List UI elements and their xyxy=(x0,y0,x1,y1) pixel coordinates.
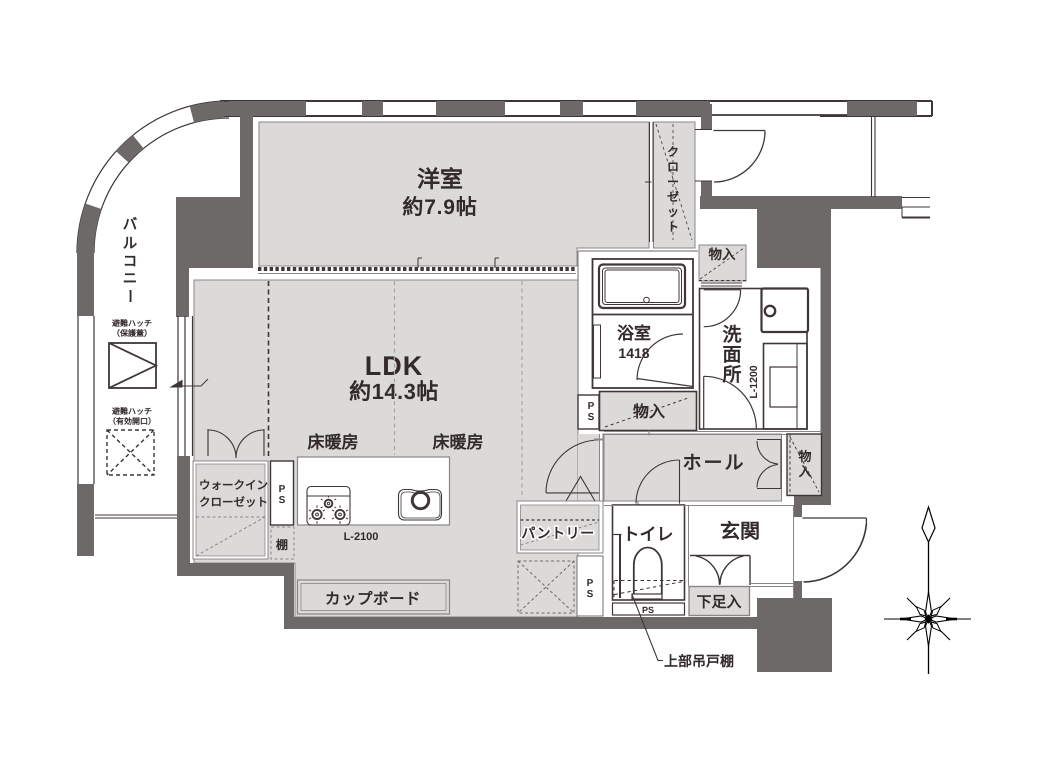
svg-text:バ: バ xyxy=(123,216,138,233)
svg-text:面: 面 xyxy=(722,345,741,366)
svg-text:ニ: ニ xyxy=(123,271,138,287)
svg-text:S: S xyxy=(588,412,595,423)
svg-text:所: 所 xyxy=(722,364,741,386)
svg-text:床暖房: 床暖房 xyxy=(433,433,484,452)
svg-text:ロ: ロ xyxy=(667,160,679,174)
svg-text:S: S xyxy=(587,589,594,600)
svg-text:避難ハッチ: 避難ハッチ xyxy=(112,407,152,416)
svg-text:玄関: 玄関 xyxy=(720,520,760,543)
svg-text:パントリー: パントリー xyxy=(521,525,594,541)
svg-text:（有効開口）: （有効開口） xyxy=(108,416,156,426)
svg-text:ル: ル xyxy=(123,236,138,252)
svg-text:浴室: 浴室 xyxy=(617,324,651,343)
svg-text:P: P xyxy=(587,578,594,589)
svg-text:物入: 物入 xyxy=(709,247,737,262)
svg-text:L-1200: L-1200 xyxy=(748,365,760,398)
svg-text:L-2100: L-2100 xyxy=(344,531,379,543)
svg-text:P: P xyxy=(588,401,595,412)
svg-text:PS: PS xyxy=(642,605,654,615)
svg-text:洗: 洗 xyxy=(722,324,741,346)
svg-text:ホール: ホール xyxy=(682,453,745,474)
svg-text:コ: コ xyxy=(123,254,138,270)
svg-text:床暖房: 床暖房 xyxy=(308,433,359,452)
svg-text:1418: 1418 xyxy=(618,345,649,361)
svg-text:ー: ー xyxy=(667,175,679,189)
svg-text:P: P xyxy=(279,484,286,495)
svg-text:入: 入 xyxy=(798,464,811,479)
svg-text:ウォークイン: ウォークイン xyxy=(199,479,268,492)
svg-text:ー: ー xyxy=(121,289,137,304)
svg-text:約7.9帖: 約7.9帖 xyxy=(402,195,477,219)
svg-text:カップボード: カップボード xyxy=(325,590,421,608)
svg-text:棚: 棚 xyxy=(276,538,288,552)
svg-text:ゼ: ゼ xyxy=(667,190,679,204)
svg-text:ッ: ッ xyxy=(667,205,679,219)
svg-text:S: S xyxy=(279,495,286,506)
svg-text:約14.3帖: 約14.3帖 xyxy=(349,379,439,404)
svg-text:ク: ク xyxy=(667,145,679,159)
svg-text:クローゼット: クローゼット xyxy=(199,496,268,509)
svg-text:上部吊戸棚: 上部吊戸棚 xyxy=(664,653,734,669)
svg-text:物入: 物入 xyxy=(633,403,665,421)
svg-text:（保護蓋）: （保護蓋） xyxy=(112,328,152,338)
svg-text:物: 物 xyxy=(798,449,811,464)
svg-text:下足入: 下足入 xyxy=(696,594,741,611)
svg-text:洋室: 洋室 xyxy=(417,166,463,192)
svg-text:ト: ト xyxy=(667,220,679,234)
svg-text:トイレ: トイレ xyxy=(623,525,674,544)
svg-text:避難ハッチ: 避難ハッチ xyxy=(112,319,152,328)
